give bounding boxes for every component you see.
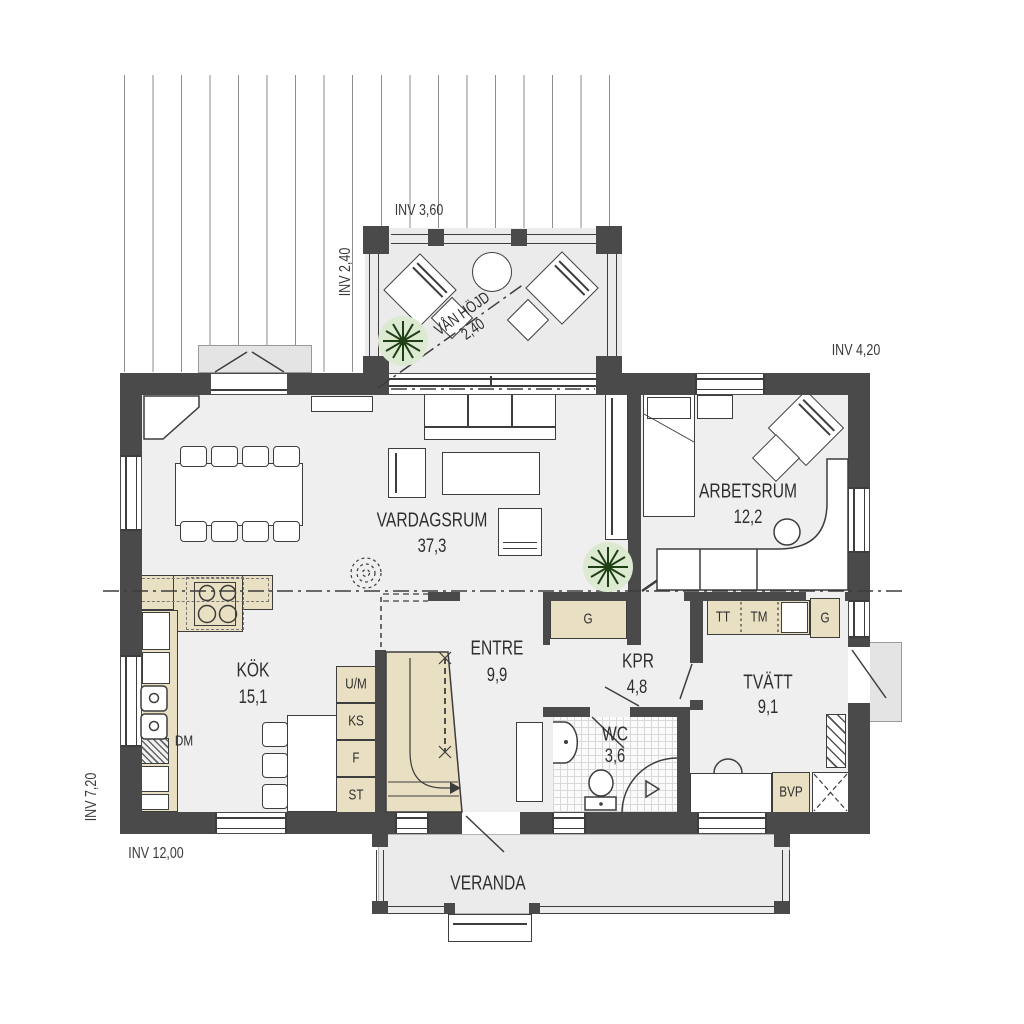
window [395, 813, 429, 833]
pergola-lines-left [124, 75, 366, 372]
corner-cabinet [139, 766, 169, 792]
window [121, 655, 141, 747]
floor-drain-box [812, 772, 849, 813]
hall-closet [550, 600, 627, 639]
veranda-railing [369, 254, 379, 356]
kitchen-cabinet [141, 794, 169, 810]
pergola-lines-right [381, 75, 611, 228]
veranda-post [428, 229, 444, 246]
veranda-railing [391, 234, 596, 244]
back-door-landing [198, 345, 312, 373]
veranda-post [529, 903, 540, 914]
hob [194, 582, 236, 626]
kitchen-chair [262, 784, 288, 809]
dining-chair [211, 446, 238, 467]
wall-wc-top [543, 707, 590, 717]
coffee-table [442, 452, 540, 495]
appliance-oven-micro [336, 666, 376, 703]
pillow [647, 397, 691, 419]
laundry-sink-box [781, 602, 808, 633]
wall-kpr-laundry [690, 700, 703, 710]
veranda-post [511, 229, 527, 246]
armchair [388, 448, 426, 498]
sofa [424, 393, 556, 440]
wall-hall [845, 592, 848, 601]
veranda-post [444, 903, 455, 914]
heat-pump-unit [772, 772, 810, 813]
dining-chair [273, 521, 300, 542]
veranda-door-opening [389, 374, 596, 394]
dining-table [175, 463, 303, 526]
veranda-post [596, 226, 622, 254]
wall-left [120, 373, 142, 834]
wall-livingroom-office [628, 395, 641, 592]
window [849, 600, 869, 638]
veranda-post [363, 226, 389, 254]
round-table [472, 252, 512, 292]
veranda-floor [378, 834, 790, 914]
kitchen-chair [262, 753, 288, 778]
window [552, 813, 586, 833]
dining-chair [242, 521, 269, 542]
dim-house-depth: INV 7,20 [83, 773, 101, 822]
side-door-opening [848, 647, 870, 703]
wall-kpr-laundry [690, 600, 703, 663]
veranda-railing [540, 906, 780, 914]
drying-rack [826, 714, 846, 768]
dining-chair [273, 446, 300, 467]
back-door-opening [211, 374, 287, 394]
appliance-freezer [336, 740, 376, 777]
hall-wardrobe [516, 722, 543, 802]
bedside-table [697, 395, 733, 419]
veranda-steps [448, 914, 532, 942]
dining-chair [180, 446, 207, 467]
veranda-post [774, 901, 790, 914]
dining-chair [211, 521, 238, 542]
wall-closet-stub [543, 598, 550, 645]
bookshelf [605, 393, 628, 540]
window [215, 813, 287, 833]
wall-kitchen-stairs [375, 650, 386, 812]
veranda-railing [376, 850, 384, 904]
appliance-fridge [336, 703, 376, 740]
armchair [498, 508, 542, 556]
wall-wc-right [677, 707, 690, 812]
front-door-opening [462, 812, 520, 834]
kitchen-cabinet [142, 652, 170, 684]
veranda-post [372, 901, 388, 914]
wall-hall [428, 592, 460, 601]
window [121, 455, 141, 531]
window [697, 813, 767, 833]
dishwasher [139, 738, 169, 764]
kitchen-chair [262, 722, 288, 747]
veranda-railing [607, 254, 617, 356]
window [849, 487, 869, 553]
dining-chair [242, 446, 269, 467]
sideboard [311, 396, 373, 412]
appliance-pantry [336, 777, 376, 814]
wall-closet-stub [627, 598, 641, 645]
window [695, 374, 765, 394]
dim-house-width: INV 12,00 [128, 845, 184, 863]
dining-chair [180, 521, 207, 542]
veranda-post [774, 834, 790, 847]
wc-tile-floor [553, 717, 677, 812]
laundry-bench [690, 773, 772, 813]
floor-plan: INV 3,60 INV 2,40 INV 4,20 INV 7,20 INV … [0, 0, 1024, 1024]
dim-right-wing: INV 4,20 [832, 342, 881, 360]
kitchen-cabinet [142, 612, 170, 650]
laundry-tall-cabinet [810, 598, 840, 638]
veranda-railing [386, 906, 450, 914]
veranda-railing [782, 850, 790, 904]
veranda-post [372, 834, 388, 847]
